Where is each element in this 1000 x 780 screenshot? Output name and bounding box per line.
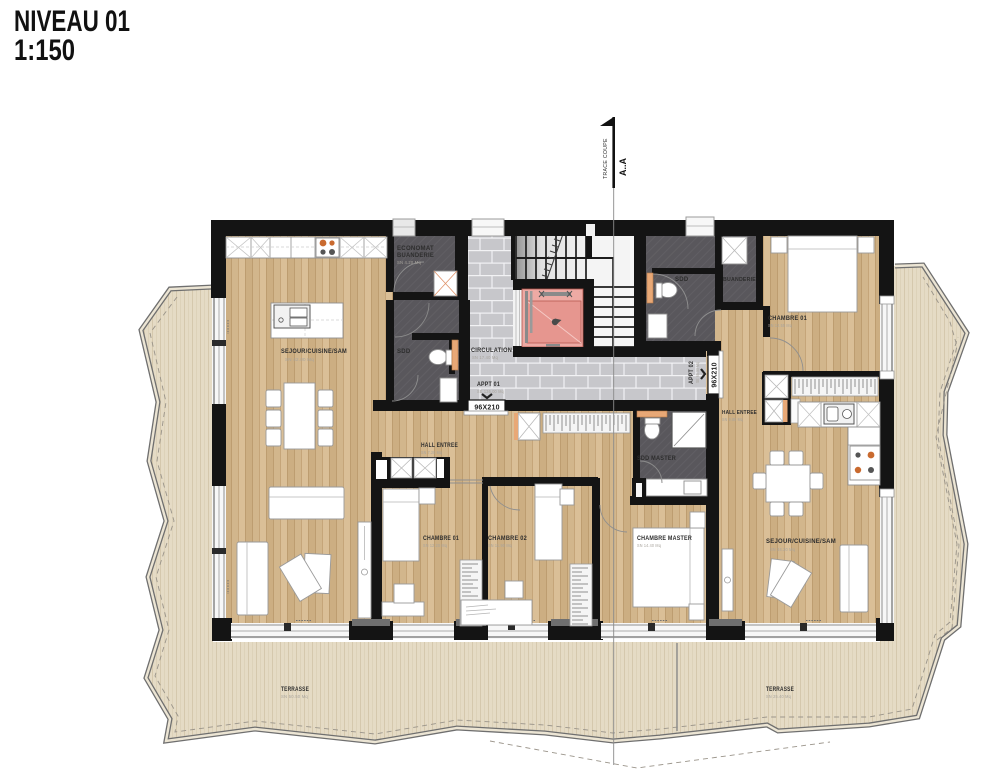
svg-text:SN 9.80 Mq: SN 9.80 Mq: [722, 417, 743, 422]
svg-text:96X210: 96X210: [474, 405, 499, 412]
svg-text:SN 4.20 Mq: SN 4.20 Mq: [397, 260, 421, 265]
svg-text:APPT 01: APPT 01: [477, 382, 500, 388]
svg-text:SN 14.40 Mq: SN 14.40 Mq: [637, 543, 661, 548]
svg-text:BUANDERIE: BUANDERIE: [397, 253, 434, 259]
svg-text:CHAMBRE MASTER: CHAMBRE MASTER: [637, 536, 692, 542]
svg-text:96X210: 96X210: [712, 362, 719, 387]
svg-text:SN 7.20 Mq: SN 7.20 Mq: [421, 450, 442, 455]
svg-text:SN 34.30 Mq: SN 34.30 Mq: [770, 547, 795, 552]
svg-text:SN 17.40 Mq: SN 17.40 Mq: [472, 355, 498, 360]
svg-text:CIRCULATION: CIRCULATION: [471, 348, 512, 354]
svg-text:SN 11.90 Mq: SN 11.90 Mq: [488, 543, 512, 548]
svg-text:HALL ENTREE: HALL ENTREE: [421, 443, 458, 449]
svg-text:SN 50.50 Mq: SN 50.50 Mq: [281, 694, 308, 699]
svg-text:BUANDERIE: BUANDERIE: [723, 277, 756, 283]
svg-text:CHAMBRE 02: CHAMBRE 02: [488, 536, 527, 542]
svg-text:SN 12.55 Mq: SN 12.55 Mq: [768, 323, 792, 328]
svg-text:SE 65.00 Mq: SE 65.00 Mq: [695, 362, 700, 383]
svg-text:A..A: A..A: [618, 157, 628, 176]
svg-text:SE 136.00 Mq: SE 136.00 Mq: [477, 389, 504, 394]
svg-text:CHAMBRE 01: CHAMBRE 01: [768, 316, 807, 322]
svg-text:SEJOUR/CUISINE/SAM: SEJOUR/CUISINE/SAM: [281, 349, 347, 355]
svg-text:SN 25.40 Mq: SN 25.40 Mq: [766, 694, 791, 699]
svg-text:SDD MASTER: SDD MASTER: [637, 456, 676, 462]
svg-text:HALL ENTREE: HALL ENTREE: [722, 410, 757, 416]
svg-text:SEJOUR/CUISINE/SAM: SEJOUR/CUISINE/SAM: [766, 539, 836, 545]
svg-text:TRACE COUPE: TRACE COUPE: [603, 138, 609, 179]
svg-text:1:150: 1:150: [14, 34, 75, 67]
svg-text:SDD: SDD: [397, 349, 411, 355]
svg-text:SN 12.20 Mq: SN 12.20 Mq: [423, 543, 447, 548]
svg-text:CHAMBRE 01: CHAMBRE 01: [423, 536, 459, 542]
svg-text:TERRASSE: TERRASSE: [766, 687, 794, 693]
svg-text:TERRASSE: TERRASSE: [281, 687, 309, 693]
svg-text:ECONOMAT: ECONOMAT: [397, 246, 434, 252]
svg-text:SN 42.00 Mq: SN 42.00 Mq: [285, 357, 314, 362]
svg-text:SDD: SDD: [675, 277, 689, 283]
